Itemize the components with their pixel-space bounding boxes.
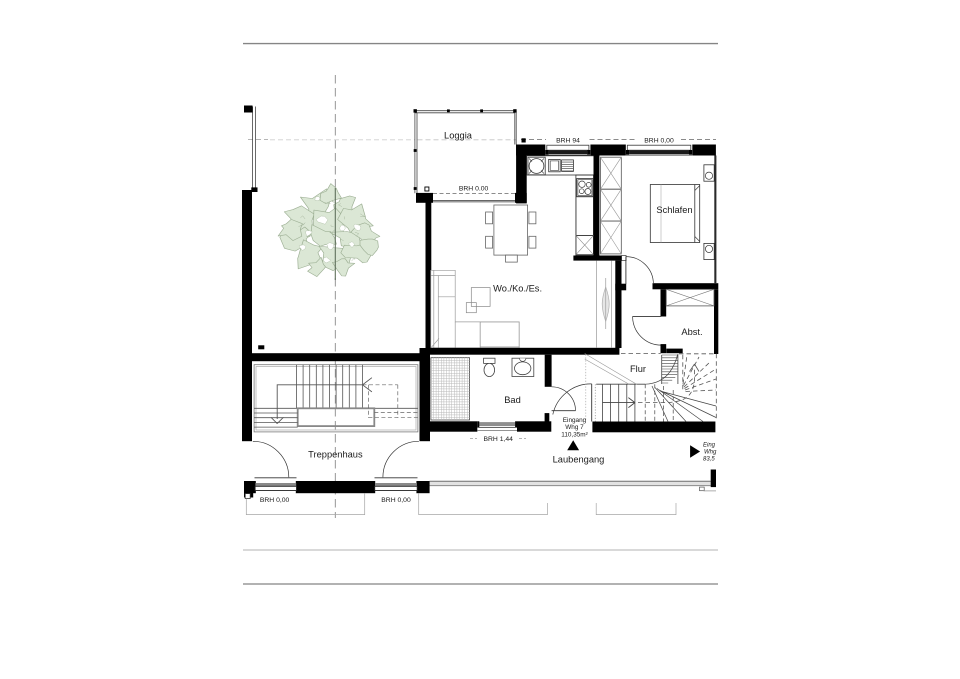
- svg-text:Whg 7: Whg 7: [565, 424, 584, 431]
- svg-text:83,5: 83,5: [703, 457, 715, 463]
- svg-text:BRH 0,00: BRH 0,00: [260, 497, 290, 504]
- svg-text:Wo./Ko./Es.: Wo./Ko./Es.: [493, 284, 542, 294]
- svg-text:Bad: Bad: [504, 395, 521, 405]
- svg-text:Eing: Eing: [703, 443, 716, 449]
- svg-text:Schlafen: Schlafen: [656, 205, 692, 215]
- svg-text:Laubengang: Laubengang: [553, 455, 605, 465]
- svg-text:BRH 1,44: BRH 1,44: [483, 436, 513, 443]
- svg-text:Whg: Whg: [704, 450, 717, 456]
- svg-text:Abst.: Abst.: [681, 327, 702, 337]
- svg-text:110,35m²: 110,35m²: [561, 431, 588, 438]
- svg-text:BRH 0,00: BRH 0,00: [381, 497, 411, 504]
- svg-text:Loggia: Loggia: [444, 130, 473, 140]
- svg-text:BRH 94: BRH 94: [556, 138, 580, 145]
- svg-text:BRH 0,00: BRH 0,00: [644, 138, 674, 145]
- svg-text:Flur: Flur: [630, 364, 646, 374]
- svg-text:Eingang: Eingang: [563, 417, 587, 424]
- svg-text:BRH 0.00: BRH 0.00: [459, 185, 489, 192]
- svg-text:Treppenhaus: Treppenhaus: [308, 449, 363, 459]
